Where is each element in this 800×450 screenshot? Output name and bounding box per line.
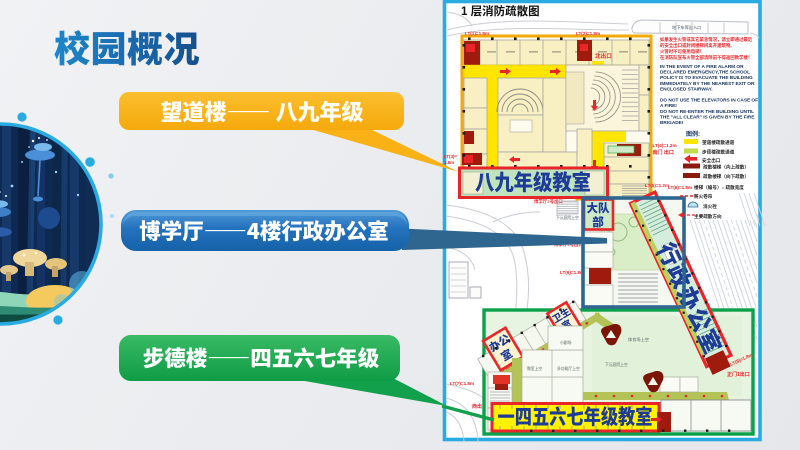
svg-text:校园概况: 校园概况 (54, 21, 200, 73)
svg-text:LT(5)=1.2m: LT(5)=1.2m (645, 183, 669, 188)
svg-text:小剧场: 小剧场 (560, 340, 572, 346)
svg-text:正门1出口: 正门1出口 (727, 371, 750, 378)
svg-text:防火卷帘: 防火卷帘 (694, 193, 713, 200)
svg-text:1.8m: 1.8m (444, 160, 454, 165)
svg-text:THE "ALL CLEAR" IS GIVEN BY: THE "ALL CLEAR" IS GIVEN BY THE FIRE (660, 114, 755, 120)
svg-text:如果发生火警或其它紧急情况，请立即通过最近: 如果发生火警或其它紧急情况，请立即通过最近 (660, 36, 753, 43)
svg-text:DO NOT RE-ENTER THE BUILDING U: DO NOT RE-ENTER THE BUILDING UNTIL (660, 109, 754, 115)
svg-text:POLICY IS TO EVACUATE THE BUIL: POLICY IS TO EVACUATE THE BUILDING (660, 75, 753, 81)
svg-text:的安全出口或封闭楼梯间离开建筑物。: 的安全出口或封闭楼梯间离开建筑物。 (660, 42, 735, 49)
svg-text:DECLARED EMERGENCY,THE SCHOOL: DECLARED EMERGENCY,THE SCHOOL (660, 70, 750, 76)
svg-text:疏散楼梯（向下疏散）: 疏散楼梯（向下疏散） (703, 173, 749, 180)
svg-text:多功能厅上空: 多功能厅上空 (557, 366, 580, 372)
svg-text:下沉庭院上空: 下沉庭院上空 (556, 215, 579, 221)
svg-text:望道楼疏散通道: 望道楼疏散通道 (702, 139, 735, 146)
svg-text:教室上空: 教室上空 (527, 366, 542, 372)
svg-text:ENCLOSED STAIRWAY.: ENCLOSED STAIRWAY. (660, 86, 713, 92)
svg-text:主要疏散方向: 主要疏散方向 (694, 213, 722, 220)
svg-text:八九年级教室: 八九年级教室 (475, 166, 591, 197)
svg-text:疏散楼梯（向上疏散）: 疏散楼梯（向上疏散） (703, 164, 749, 171)
svg-text:LT(6)=1.8m: LT(6)=1.8m (560, 270, 584, 275)
svg-text:LT(3)=: LT(3)= (444, 154, 457, 159)
svg-text:部: 部 (592, 214, 604, 230)
svg-text:LT(1)=1.8m: LT(1)=1.8m (465, 31, 489, 37)
svg-text:1 层消防疏散图: 1 层消防疏散图 (461, 3, 540, 19)
svg-text:南门 出口: 南门 出口 (653, 149, 674, 156)
svg-text:下沉庭院上空: 下沉庭院上空 (605, 362, 628, 368)
svg-text:LT(7)=1.8m: LT(7)=1.8m (450, 381, 474, 386)
svg-text:在消防队宣布火警全部清除前不得返回教学楼！: 在消防队宣布火警全部清除前不得返回教学楼！ (660, 54, 752, 61)
svg-text:LT(2)=1.8m: LT(2)=1.8m (576, 31, 600, 37)
svg-text:LT(4)=1.2m: LT(4)=1.2m (653, 143, 677, 148)
svg-text:楼梯（编号）= 疏散宽度: 楼梯（编号）= 疏散宽度 (694, 184, 744, 191)
svg-text:步德楼——四五六七年级: 步德楼——四五六七年级 (143, 342, 380, 373)
svg-text:一四五六七年级教室: 一四五六七年级教室 (498, 400, 653, 430)
svg-text:LT(6)=1.8m: LT(6)=1.8m (668, 185, 692, 190)
svg-text:火警时不可使用电梯！: 火警时不可使用电梯！ (660, 48, 704, 55)
svg-text:步德楼疏散通道: 步德楼疏散通道 (702, 149, 735, 156)
svg-text:地下车库出入口: 地下车库出入口 (672, 24, 701, 31)
svg-text:消火栓: 消火栓 (703, 203, 717, 210)
svg-text:A FIRE!: A FIRE! (660, 103, 677, 109)
svg-text:IN THE EVENT OF A FIRE ALARM O: IN THE EVENT OF A FIRE ALARM OR (660, 64, 744, 70)
svg-text:望道楼—— 八九年级: 望道楼—— 八九年级 (160, 95, 363, 127)
svg-text:图例:: 图例: (686, 129, 700, 138)
svg-text:体育场上空: 体育场上空 (628, 336, 649, 343)
svg-text:北出口: 北出口 (595, 52, 612, 60)
svg-text:BRIGADE!: BRIGADE! (660, 120, 684, 126)
svg-text:DO NOT USE THE ELEVATORS IN CA: DO NOT USE THE ELEVATORS IN CASE OF (660, 98, 758, 104)
svg-text:IMMEDIATELY BY THE NEAREST EXI: IMMEDIATELY BY THE NEAREST EXIT OR (660, 81, 755, 87)
svg-text:博学厅——4楼行政办公室: 博学厅——4楼行政办公室 (139, 215, 389, 246)
svg-text:安全出口: 安全出口 (702, 157, 721, 164)
